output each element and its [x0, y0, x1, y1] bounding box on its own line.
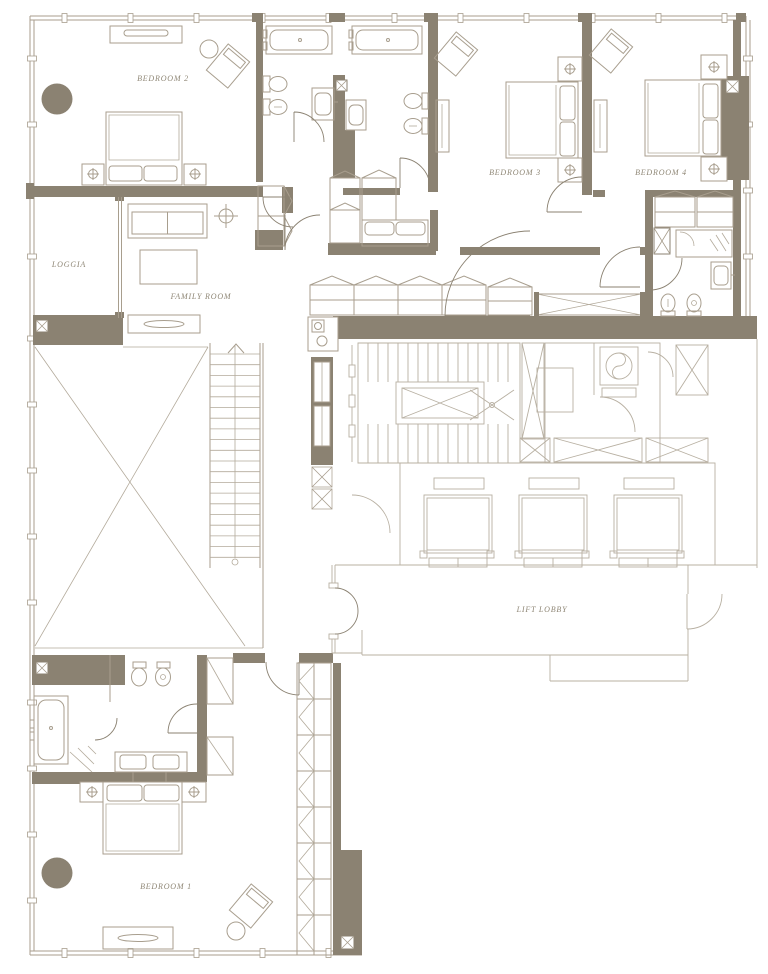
coffee-table-icon	[140, 250, 197, 284]
toilet-icon	[263, 76, 287, 92]
vent-box-icon	[36, 320, 48, 332]
bidet-icon	[263, 99, 287, 115]
wardrobe-icon	[310, 276, 486, 315]
room-label-loggia: LOGGIA	[51, 260, 86, 269]
vent-box-icon	[312, 467, 332, 487]
room-bedroom-3	[434, 32, 582, 182]
door-swing-icon	[400, 158, 430, 188]
door-swing-icon	[266, 662, 299, 695]
console-icon	[594, 100, 607, 152]
vent-box-icon	[336, 80, 347, 91]
bidet-icon	[404, 118, 428, 134]
nightstand-icon	[80, 782, 104, 802]
door-swing-icon	[168, 704, 197, 733]
wardrobe-icon	[330, 171, 360, 243]
door-swing-icon	[600, 397, 635, 432]
stair-icon	[210, 343, 263, 648]
ceiling-light-icon	[214, 204, 238, 228]
side-table-icon	[227, 922, 245, 940]
room-bedroom-2	[42, 26, 250, 185]
column-icon	[42, 84, 73, 115]
bathroom-3-ensuite	[346, 26, 428, 134]
door-swing-icon	[294, 112, 324, 142]
tv-console-icon	[128, 315, 200, 333]
vent-box-icon	[341, 936, 354, 949]
door-swing-icon	[95, 718, 117, 740]
shaft-icon	[520, 438, 550, 462]
bathtub-icon	[349, 26, 422, 54]
dresser-icon	[110, 26, 182, 43]
room-bedroom-4	[589, 29, 727, 181]
basin-icon	[346, 100, 366, 130]
pantry-sink-icon	[308, 317, 338, 351]
shaft-icon	[554, 438, 642, 462]
nightstand-icon	[558, 57, 582, 81]
nightstand-icon	[701, 157, 727, 181]
washer-icon	[600, 347, 638, 397]
column-icon	[42, 858, 73, 889]
door-swing-icon	[650, 258, 682, 290]
lift-icon	[420, 478, 494, 567]
nightstand-icon	[558, 158, 582, 182]
shower-icon	[70, 746, 96, 772]
nightstand-icon	[701, 55, 727, 79]
vent-box-icon	[726, 80, 739, 93]
bidet-icon	[687, 294, 701, 316]
nightstand-icon	[184, 164, 206, 185]
door-swings	[95, 112, 722, 740]
storage-cabinet-icon	[534, 292, 645, 317]
armchair-icon	[589, 29, 632, 73]
door-swing-icon	[687, 594, 722, 629]
building-core	[349, 339, 757, 568]
armchair-icon	[434, 32, 477, 76]
room-loggia	[119, 197, 122, 318]
room-label-bedroom-3: BEDROOM 3	[489, 168, 541, 177]
toilet-icon	[661, 294, 675, 316]
stool-icon	[200, 40, 218, 58]
toilet-icon	[404, 93, 428, 109]
room-label-family-room: FAMILY ROOM	[170, 292, 232, 301]
lift-icon	[610, 478, 684, 567]
room-label-bedroom-1: BEDROOM 1	[140, 882, 192, 891]
nightstand-icon	[182, 782, 206, 802]
shaft-icon	[676, 345, 708, 395]
room-label-bedroom-2: BEDROOM 2	[137, 74, 189, 83]
wardrobe-icon	[297, 663, 331, 955]
vent-box-icon	[654, 228, 670, 254]
floor-plan: BEDROOM 2 BEDROOM 3 BEDROOM 4 LOGGIA FAM…	[0, 0, 768, 974]
shaft-icon	[522, 343, 544, 439]
bench-icon	[103, 927, 173, 949]
toilet-icon	[132, 662, 147, 686]
door-swing-icon	[600, 247, 640, 287]
bidet-icon	[156, 662, 171, 686]
corridor	[308, 276, 645, 351]
vent-box-icon	[36, 662, 48, 674]
vent-box-icon	[312, 489, 332, 509]
floor-plan-drawing: BEDROOM 2 BEDROOM 3 BEDROOM 4 LOGGIA FAM…	[0, 0, 768, 974]
bathroom-2-ensuite	[263, 26, 338, 120]
bed-icon	[645, 80, 721, 156]
room-bedroom-1	[30, 655, 331, 955]
shower-icon	[676, 230, 732, 257]
bed-icon	[106, 112, 182, 185]
armchair-icon	[206, 44, 249, 88]
door-swing-icon	[352, 495, 390, 533]
bench-icon	[362, 220, 428, 246]
sofa-icon	[128, 204, 207, 238]
bathtub-icon	[30, 696, 68, 764]
bathtub-icon	[263, 26, 332, 54]
wardrobe-icon	[488, 278, 532, 315]
bed-icon	[506, 82, 578, 158]
nightstand-icon	[82, 164, 104, 185]
void-cross-icon	[35, 347, 263, 648]
walk-in-closets	[258, 170, 428, 246]
closet-icon	[207, 737, 233, 775]
door-swing-icon	[648, 352, 673, 377]
room-label-bedroom-4: BEDROOM 4	[635, 168, 687, 177]
basin-icon	[312, 88, 338, 120]
lift-icon	[515, 478, 589, 567]
room-family-room	[128, 204, 238, 333]
basin-icon	[711, 262, 735, 289]
bed-icon	[103, 782, 182, 854]
door-swing-icon	[285, 215, 320, 250]
door-swing-icon	[335, 588, 358, 634]
armchair-icon	[229, 884, 272, 928]
room-label-lift-lobby: LIFT LOBBY	[516, 605, 569, 614]
shaft-icon	[646, 438, 708, 462]
closet-icon	[207, 658, 233, 704]
lift-lobby-walls	[329, 565, 757, 681]
